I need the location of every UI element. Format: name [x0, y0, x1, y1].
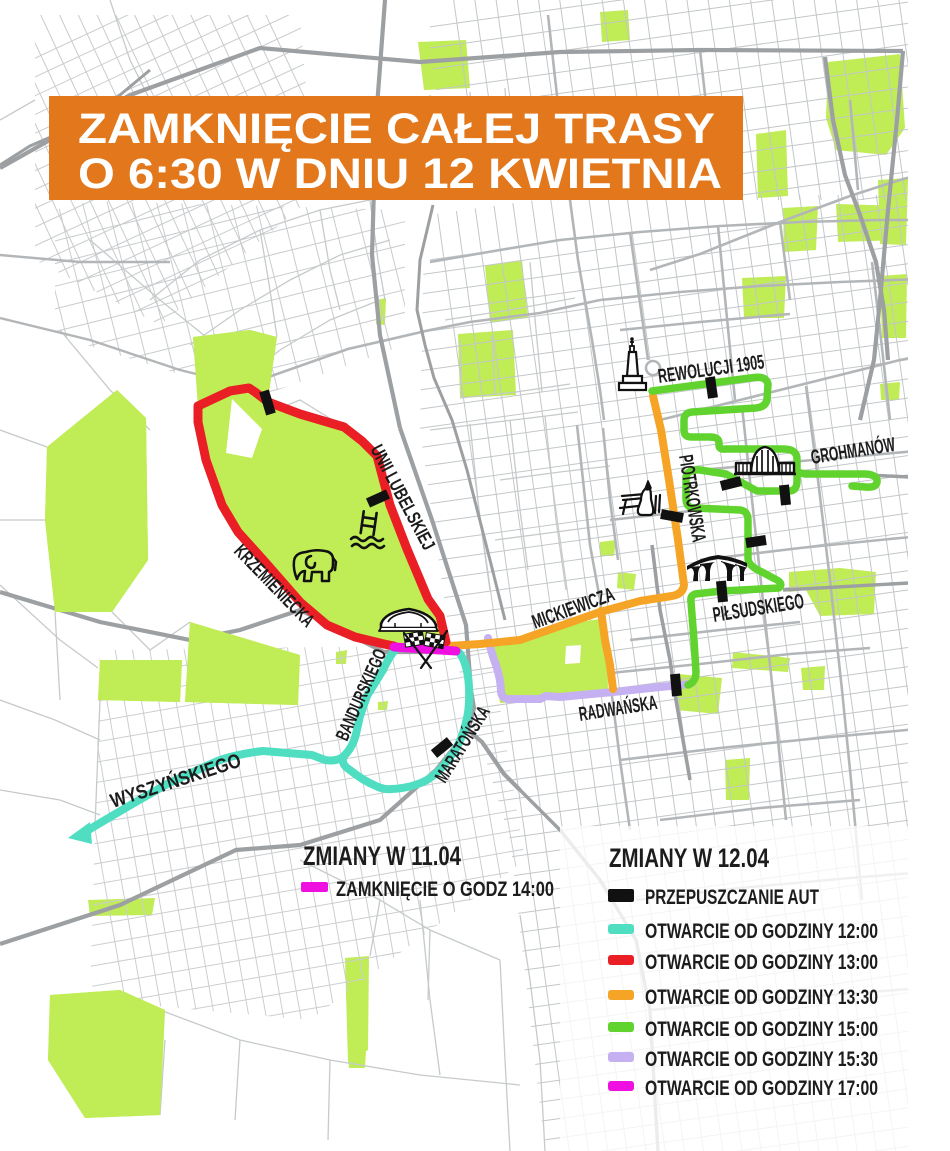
svg-text:OTWARCIE OD GODZINY 15:00: OTWARCIE OD GODZINY 15:00 [645, 1018, 878, 1041]
svg-text:OTWARCIE OD GODZINY 13:30: OTWARCIE OD GODZINY 13:30 [645, 986, 878, 1009]
svg-text:PRZEPUSZCZANIE AUT: PRZEPUSZCZANIE AUT [645, 886, 819, 909]
svg-text:OTWARCIE OD GODZINY 12:00: OTWARCIE OD GODZINY 12:00 [645, 920, 878, 943]
svg-text:ZMIANY W 11.04: ZMIANY W 11.04 [303, 841, 461, 871]
svg-text:ZAMKNIĘCIE O GODZ 14:00: ZAMKNIĘCIE O GODZ 14:00 [336, 878, 554, 901]
svg-text:ZMIANY W 12.04: ZMIANY W 12.04 [609, 843, 769, 873]
svg-text:OTWARCIE OD GODZINY 13:00: OTWARCIE OD GODZINY 13:00 [645, 951, 878, 974]
svg-text:OTWARCIE OD GODZINY 15:30: OTWARCIE OD GODZINY 15:30 [645, 1048, 878, 1071]
svg-text:O 6:30 W DNIU 12 KWIETNIA: O 6:30 W DNIU 12 KWIETNIA [78, 150, 722, 198]
svg-text:OTWARCIE OD GODZINY 17:00: OTWARCIE OD GODZINY 17:00 [645, 1077, 878, 1100]
svg-text:ZAMKNIĘCIE CAŁEJ TRASY: ZAMKNIĘCIE CAŁEJ TRASY [78, 105, 715, 153]
